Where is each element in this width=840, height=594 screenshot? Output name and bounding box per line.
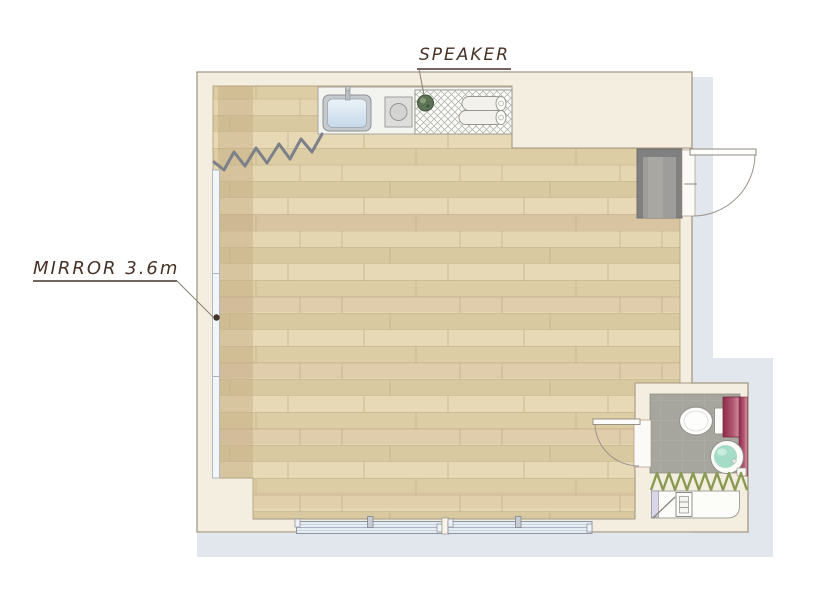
stove	[385, 97, 412, 127]
speaker-label: SPEAKER	[419, 45, 510, 65]
mirror-annotation-lines	[33, 281, 220, 321]
vanity-cabinet	[723, 397, 741, 437]
window-end-cap	[587, 524, 592, 532]
window-end-cap	[437, 524, 442, 532]
floor-plan-drawing	[0, 0, 840, 594]
drawer-unit	[676, 493, 692, 517]
mirror-leader-dot	[213, 314, 219, 320]
window-handle	[368, 517, 374, 528]
storage-hatch	[415, 90, 512, 134]
window-end-cap	[448, 519, 453, 527]
mirror-label: MIRROR 3.6m	[33, 258, 179, 279]
entry-door	[682, 149, 756, 216]
wall-mirror	[213, 170, 220, 478]
entry-door-leaf	[690, 149, 756, 155]
shower-tray	[652, 491, 740, 518]
floor-edge-board	[218, 86, 253, 478]
window-handle	[516, 517, 522, 528]
speaker-icon	[418, 95, 434, 111]
floor-plan: MIRROR 3.6m SPEAKER	[0, 0, 840, 594]
window-end-cap	[295, 519, 300, 527]
bathroom	[650, 394, 748, 518]
entry-mat	[637, 149, 682, 218]
toilet	[680, 407, 726, 435]
drain-icon	[732, 459, 736, 463]
bathroom-door-leaf	[593, 419, 640, 425]
